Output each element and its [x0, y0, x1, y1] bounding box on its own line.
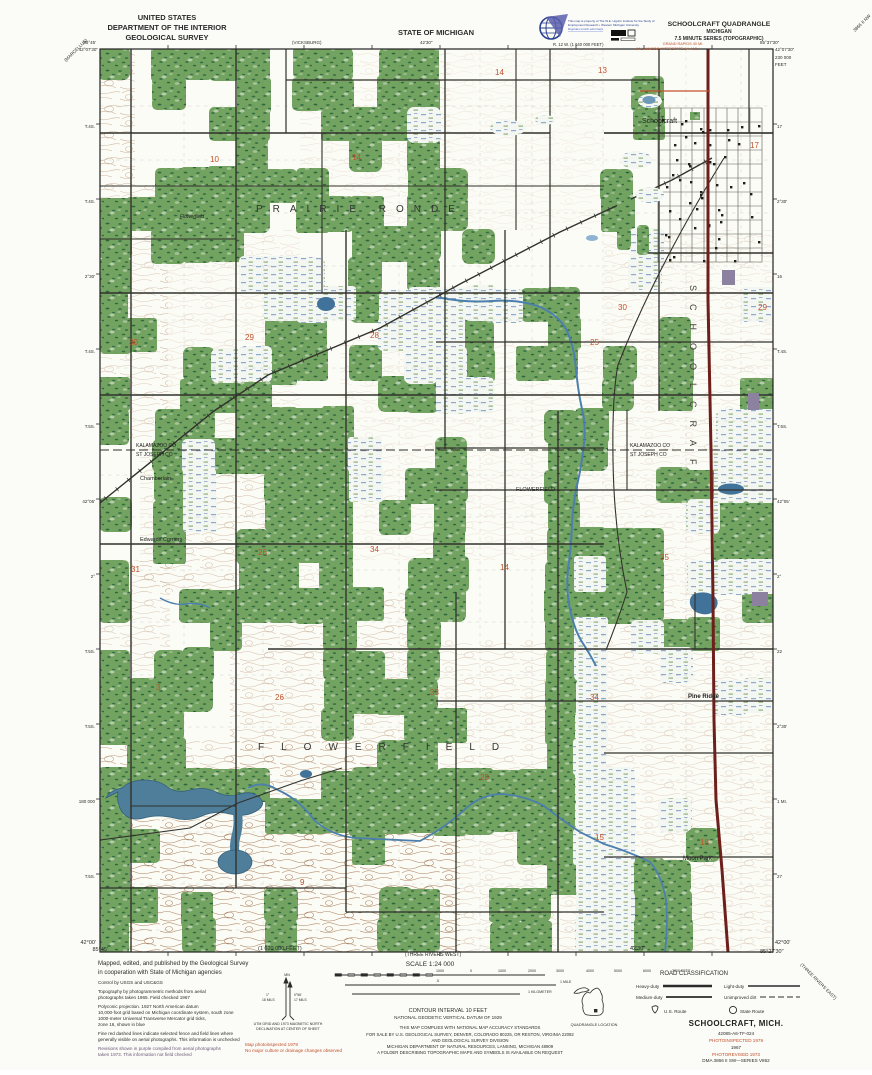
svg-text:31: 31	[131, 565, 140, 574]
svg-text:T.4S.: T.4S.	[85, 199, 95, 204]
svg-text:in cooperation with State of M: in cooperation with State of Michigan ag…	[98, 970, 222, 976]
svg-text:85°45': 85°45'	[93, 947, 109, 953]
svg-text:6000: 6000	[643, 969, 651, 973]
svg-text:Topography by photogrammetric: Topography by photogrammetric methods fr…	[98, 989, 206, 994]
svg-text:0: 0	[470, 969, 472, 973]
svg-text:34: 34	[590, 693, 599, 702]
svg-text:25: 25	[590, 338, 599, 347]
svg-text:(VICKSBURG): (VICKSBURG)	[292, 40, 322, 45]
svg-text:42'30": 42'30"	[630, 946, 645, 952]
svg-text:16: 16	[777, 274, 783, 279]
svg-text:A FOLDER DESCRIBING TOPOGRAPHI: A FOLDER DESCRIBING TOPOGRAPHIC MAPS AND…	[377, 1050, 563, 1055]
svg-text:13: 13	[598, 66, 607, 75]
svg-text:85°27'30": 85°27'30"	[760, 949, 784, 955]
svg-text:1000: 1000	[436, 969, 444, 973]
svg-text:STATE OF MICHIGAN: STATE OF MICHIGAN	[398, 28, 474, 37]
svg-text:ROAD CLASSIFICATION: ROAD CLASSIFICATION	[660, 971, 728, 977]
svg-text:28: 28	[370, 331, 379, 340]
svg-text:FLOWERFIELD: FLOWERFIELD	[516, 487, 555, 493]
svg-text:SCHOOLCRAFT, MICH.: SCHOOLCRAFT, MICH.	[689, 1019, 784, 1028]
svg-text:NATIONAL GEODETIC VERTICAL DAT: NATIONAL GEODETIC VERTICAL DATUM OF 1929	[394, 1015, 502, 1020]
svg-text:180 000: 180 000	[79, 799, 96, 804]
svg-text:R. 12 W. (1 640 000 FEET): R. 12 W. (1 640 000 FEET)	[553, 42, 604, 47]
svg-text:1967: 1967	[731, 1045, 742, 1050]
svg-text:17: 17	[777, 124, 783, 129]
svg-text:1 MI.: 1 MI.	[777, 799, 787, 804]
svg-text:30: 30	[129, 338, 138, 347]
svg-text:THIS MAP COMPLIES WITH NATIONA: THIS MAP COMPLIES WITH NATIONAL MAP ACCU…	[400, 1025, 541, 1030]
svg-text:17 MILS: 17 MILS	[294, 998, 307, 1002]
svg-text:UNITED STATES: UNITED STATES	[138, 13, 196, 22]
svg-text:230 000: 230 000	[775, 55, 792, 60]
svg-text:10: 10	[210, 155, 219, 164]
svg-text:30: 30	[618, 303, 627, 312]
svg-text:AND GEOLOGICAL SURVEY DIVISION: AND GEOLOGICAL SURVEY DIVISION	[431, 1038, 508, 1043]
svg-text:42°00': 42°00'	[81, 940, 97, 946]
svg-text:18: 18	[700, 838, 709, 847]
svg-text:MN: MN	[284, 973, 290, 977]
svg-text:T.4S.: T.4S.	[85, 349, 95, 354]
svg-text:CONTOUR INTERVAL 10 FEET: CONTOUR INTERVAL 10 FEET	[409, 1008, 488, 1014]
svg-text:Polyconic projection. 1927 No: Polyconic projection. 1927 North America…	[98, 1004, 199, 1009]
svg-text:ST JOSEPH CO: ST JOSEPH CO	[630, 452, 667, 458]
svg-text:2°: 2°	[777, 574, 782, 579]
svg-text:T.5S.: T.5S.	[85, 424, 95, 429]
svg-text:T.4S.: T.4S.	[85, 124, 95, 129]
svg-text:10,000-foot grid based on Mich: 10,000-foot grid based on Michigan coord…	[98, 1010, 234, 1015]
svg-text:GEOLOGICAL SURVEY: GEOLOGICAL SURVEY	[125, 33, 208, 42]
svg-text:Control by USGS and USC&GS: Control by USGS and USC&GS	[98, 980, 163, 985]
svg-text:29: 29	[758, 303, 767, 312]
svg-text:Light-duty: Light-duty	[724, 984, 745, 989]
svg-text:17: 17	[750, 141, 759, 150]
svg-text:DMA 3866 II SW—SERIES V862: DMA 3866 II SW—SERIES V862	[702, 1058, 770, 1063]
svg-text:libguides.wmich.edu/maps: libguides.wmich.edu/maps	[568, 27, 604, 31]
svg-text:42°05': 42°05'	[82, 499, 95, 504]
svg-text:No major culture or drainage c: No major culture or drainage changes obs…	[245, 1048, 342, 1053]
svg-text:27: 27	[777, 874, 783, 879]
svg-text:14: 14	[500, 563, 509, 572]
svg-text:PRAIRIE RONDE: PRAIRIE RONDE	[256, 204, 465, 215]
svg-text:generally visible on aerial ph: generally visible on aerial photographs.…	[98, 1037, 240, 1042]
svg-text:Schoolcraft: Schoolcraft	[642, 118, 677, 125]
svg-text:taken 1973. This information: taken 1973. This information not field c…	[98, 1052, 192, 1057]
svg-text:26: 26	[258, 548, 267, 557]
svg-text:42'30": 42'30"	[420, 40, 433, 45]
svg-text:1000-meter Universal Transvers: 1000-meter Universal Transverse Mercator…	[98, 1016, 206, 1021]
svg-text:SCHOOLCRAFT: SCHOOLCRAFT	[688, 285, 698, 496]
svg-text:14: 14	[352, 153, 361, 162]
svg-text:T.5S.: T.5S.	[85, 649, 95, 654]
svg-text:ST JOSEPH CO: ST JOSEPH CO	[136, 452, 173, 458]
svg-text:14: 14	[495, 68, 504, 77]
svg-text:2°: 2°	[91, 574, 96, 579]
svg-text:Mapped, edited, and published: Mapped, edited, and published by the Geo…	[98, 961, 248, 967]
svg-text:FEET: FEET	[775, 62, 787, 67]
svg-text:35: 35	[660, 553, 669, 562]
svg-text:T.5S.: T.5S.	[85, 874, 95, 879]
svg-text:33: 33	[430, 688, 439, 697]
svg-text:1 KILOMETER: 1 KILOMETER	[528, 990, 552, 994]
svg-text:MICHIGAN DEPARTMENT OF NATURAL: MICHIGAN DEPARTMENT OF NATURAL RESOURCES…	[387, 1044, 554, 1049]
svg-text:UTM GRID AND 1973 MAGNETIC NOR: UTM GRID AND 1973 MAGNETIC NORTH	[254, 1022, 323, 1026]
svg-text:FLOWERFIELD: FLOWERFIELD	[258, 742, 516, 753]
svg-text:(1 620 000 FEET): (1 620 000 FEET)	[258, 946, 302, 952]
svg-text:Map photoinspected 1979: Map photoinspected 1979	[245, 1042, 298, 1047]
svg-text:22: 22	[777, 649, 783, 654]
svg-text:18 MILS: 18 MILS	[262, 998, 275, 1002]
svg-text:29: 29	[245, 333, 254, 342]
svg-text:15: 15	[595, 833, 604, 842]
svg-text:9: 9	[300, 878, 305, 887]
svg-text:SCHOOLCRAFT QUADRANGLE: SCHOOLCRAFT QUADRANGLE	[668, 21, 771, 28]
svg-text:(THREE RIVERS WEST): (THREE RIVERS WEST)	[405, 952, 461, 958]
svg-text:T.5S.: T.5S.	[777, 424, 787, 429]
svg-text:Pine Ridge: Pine Ridge	[688, 694, 720, 700]
svg-text:34: 34	[370, 545, 379, 554]
svg-text:QUADRANGLE LOCATION: QUADRANGLE LOCATION	[571, 1023, 618, 1027]
svg-text:3000: 3000	[556, 969, 564, 973]
svg-text:photographs taken 1965. Field: photographs taken 1965. Field checked 19…	[98, 995, 190, 1000]
svg-text:zone 16, shown in blue: zone 16, shown in blue	[98, 1022, 145, 1027]
svg-text:0°56': 0°56'	[294, 993, 302, 997]
svg-text:Unimproved dirt: Unimproved dirt	[724, 995, 757, 1000]
svg-text:Heavy-duty: Heavy-duty	[636, 984, 660, 989]
svg-text:T.4S.: T.4S.	[777, 349, 787, 354]
svg-text:28: 28	[480, 773, 489, 782]
svg-text:KALAMAZOO CO: KALAMAZOO CO	[630, 443, 670, 449]
svg-text:Moon Park: Moon Park	[683, 856, 713, 862]
svg-text:2°30': 2°30'	[777, 199, 787, 204]
svg-text:U.S. Route: U.S. Route	[664, 1009, 687, 1014]
svg-text:State Route: State Route	[740, 1009, 765, 1014]
svg-text:SCALE 1:24 000: SCALE 1:24 000	[406, 961, 455, 968]
svg-text:42°05': 42°05'	[777, 499, 790, 504]
svg-text:MICHIGAN: MICHIGAN	[706, 29, 732, 35]
svg-text:1 MILE: 1 MILE	[560, 980, 572, 984]
svg-text:4000: 4000	[586, 969, 594, 973]
svg-text:GRAND RAPIDS 40 MI.: GRAND RAPIDS 40 MI.	[663, 42, 704, 46]
svg-text:26: 26	[275, 693, 284, 702]
svg-text:Flowerfield: Flowerfield	[180, 214, 204, 220]
svg-text:DEPARTMENT OF THE INTERIOR: DEPARTMENT OF THE INTERIOR	[107, 23, 227, 32]
svg-text:PHOTOREVISED 1973: PHOTOREVISED 1973	[712, 1052, 760, 1057]
svg-text:KALAMAZOO INTERSTATE 94 4 MI.: KALAMAZOO INTERSTATE 94 4 MI.	[636, 47, 699, 51]
svg-text:Medium-duty: Medium-duty	[636, 995, 663, 1000]
svg-text:Fine red dashed lines indicate: Fine red dashed lines indicate selected …	[98, 1031, 234, 1036]
svg-text:85°37'30": 85°37'30"	[760, 40, 780, 45]
svg-text:.5: .5	[436, 979, 439, 983]
svg-text:3: 3	[156, 683, 161, 692]
svg-text:DECLINATION AT CENTER OF SHEET: DECLINATION AT CENTER OF SHEET	[256, 1027, 321, 1031]
svg-text:T.5S.: T.5S.	[85, 724, 95, 729]
svg-text:2000: 2000	[528, 969, 536, 973]
svg-text:1000: 1000	[498, 969, 506, 973]
svg-text:FOR SALE BY U.S. GEOLOGICAL SU: FOR SALE BY U.S. GEOLOGICAL SURVEY, DENV…	[366, 1032, 574, 1037]
svg-text:Edwards Corners: Edwards Corners	[140, 537, 183, 543]
svg-text:Chamberlain: Chamberlain	[140, 476, 171, 482]
svg-text:PHOTOINSPECTED 1979: PHOTOINSPECTED 1979	[709, 1038, 763, 1043]
svg-text:Revisions shown in purple comp: Revisions shown in purple compiled from …	[98, 1046, 222, 1051]
svg-text:42°07'30": 42°07'30"	[79, 47, 99, 52]
svg-text:2°30': 2°30'	[777, 724, 787, 729]
svg-text:42085-A6-TF-024: 42085-A6-TF-024	[718, 1031, 755, 1036]
svg-text:42°07'30": 42°07'30"	[775, 47, 795, 52]
svg-text:42°00': 42°00'	[775, 940, 791, 946]
svg-text:5000: 5000	[614, 969, 622, 973]
svg-text:2°30': 2°30'	[85, 274, 95, 279]
svg-text:KALAMAZOO CO: KALAMAZOO CO	[136, 443, 176, 449]
